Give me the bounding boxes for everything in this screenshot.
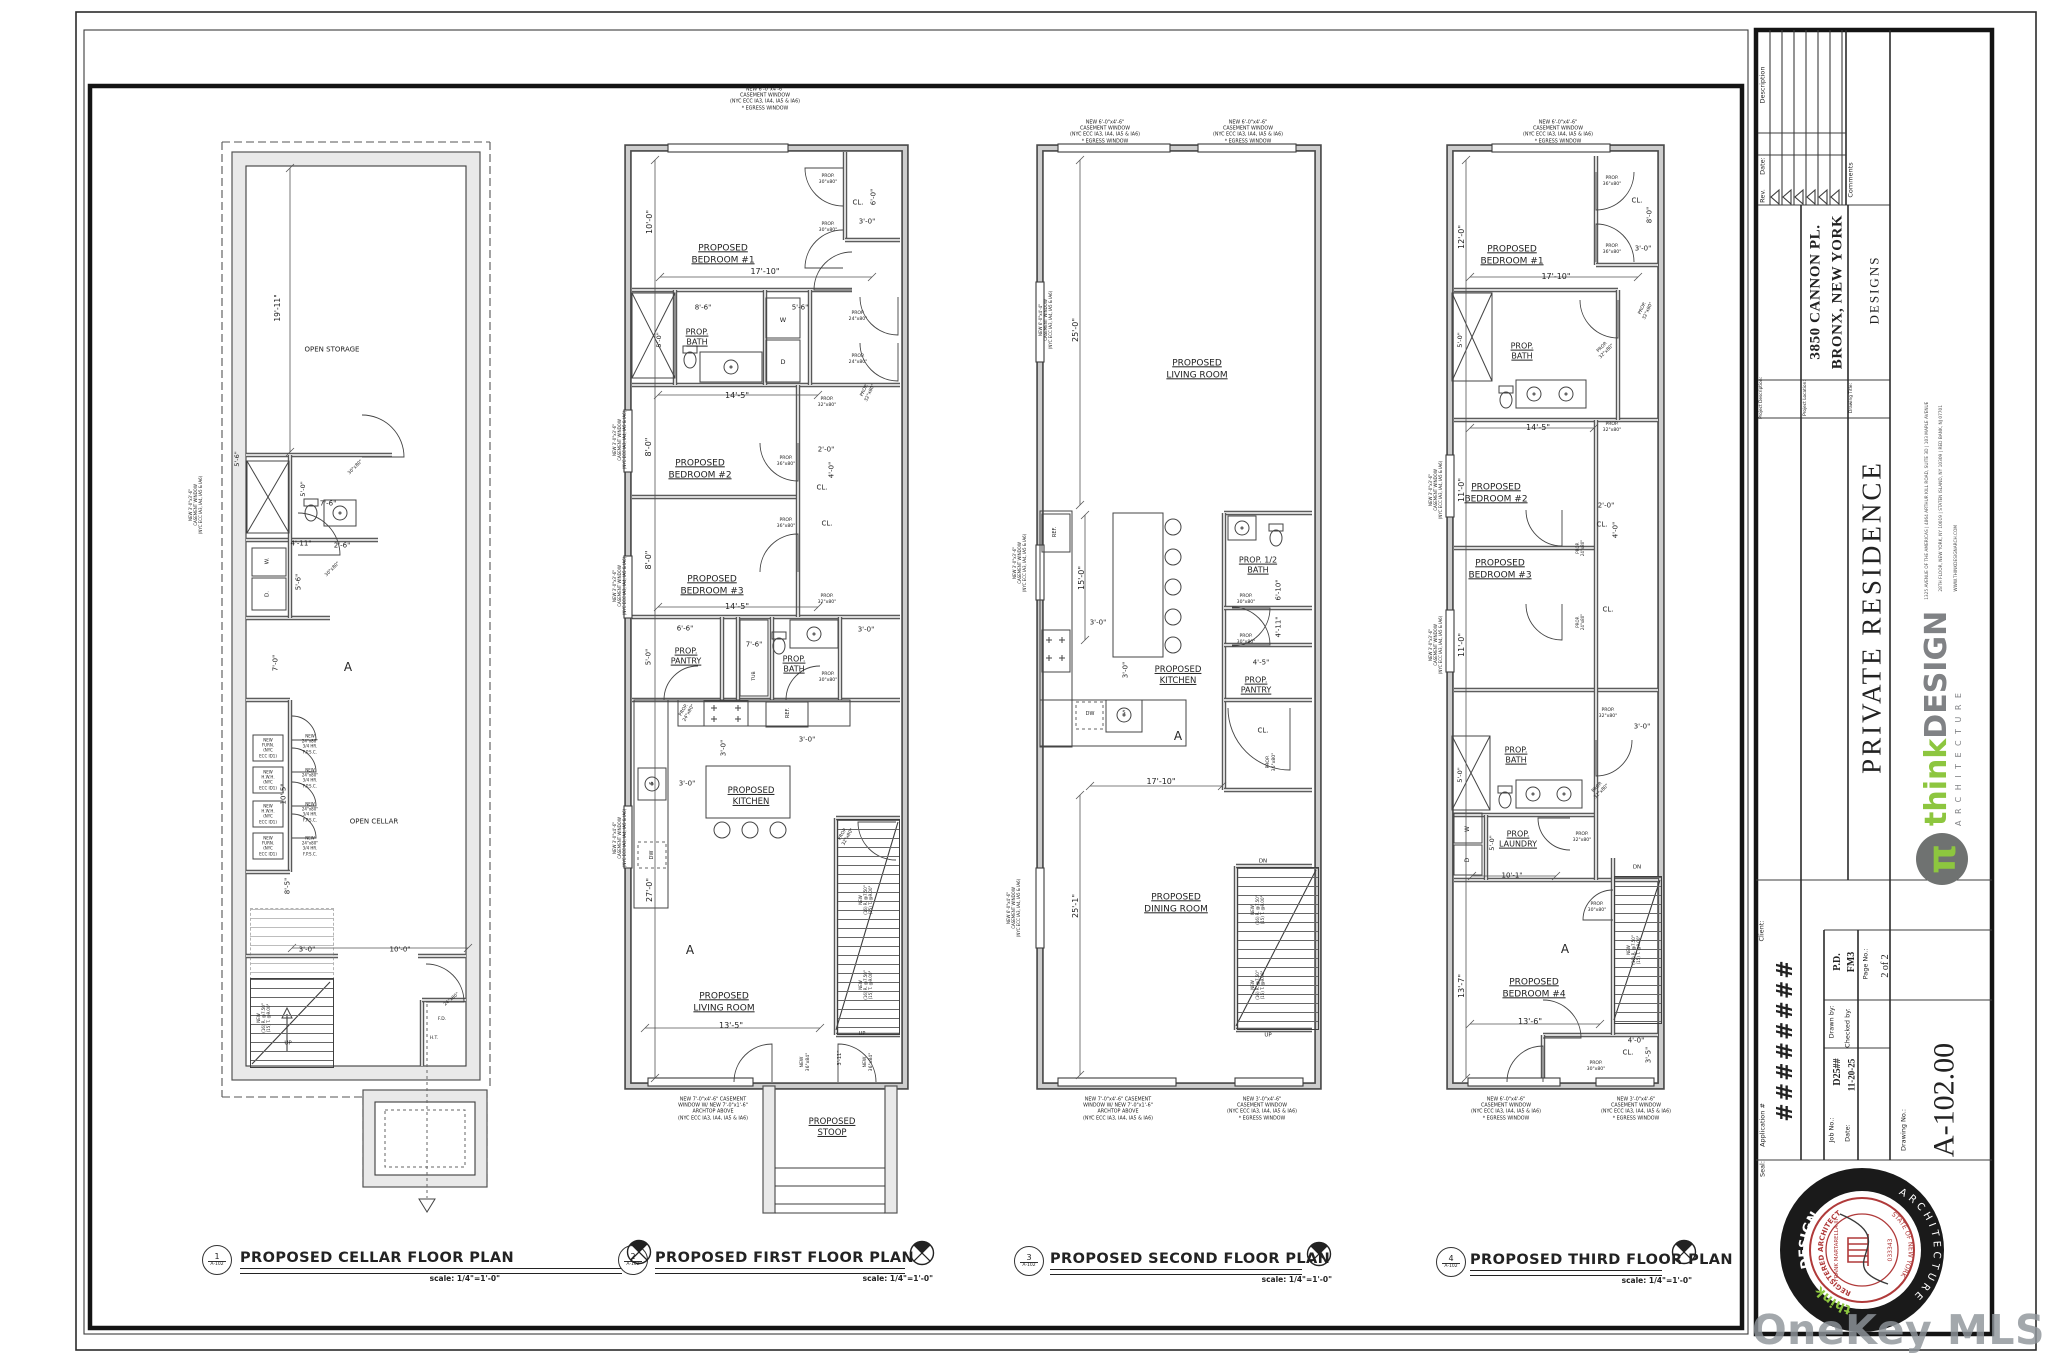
annotation-label: NEW 7'-0"x4'-6" CASEMENT WINDOW W/ NEW 7… [1083,1098,1153,1123]
annotation-label: 3'-0" [1634,722,1651,731]
annotation-label: 3'-0" [1635,244,1652,253]
annotation-label: REF. [785,708,792,718]
annotation-label: S [649,781,656,784]
annotation-label: 5'-0" [644,649,653,666]
onekey-mls-watermark: OneKey MLS [1700,1306,2045,1354]
annotation-label: PROP. LAUNDRY [1499,830,1537,851]
annotation-label: 3'-0" [1090,618,1107,627]
plan-number-bubble: 4 A-102 [1436,1247,1466,1277]
annotation-label: 13'-5" [719,1021,743,1031]
annotation-label: 4'-0" [1611,522,1620,539]
annotation-label: PROPOSED BEDROOM #2 [1464,482,1527,505]
annotation-label: PROP. 36"x80" [1603,244,1622,256]
annotation-label: 2'-0" [1598,501,1615,510]
annotation-label: CL. [1631,196,1642,205]
annotation-label: PROP. 32"x80" [1573,832,1592,844]
annotation-label: 11'-0" [1457,633,1467,657]
annotation-label: CL. [816,483,827,492]
annotation-label: A [344,660,352,676]
annotation-label: NEW 6'-0"x4'-6" CASEMENT WINDOW (NYC ECC… [1523,121,1593,146]
annotation-label: W [780,316,786,324]
annotation-label: PROP. 36"x80" [1603,176,1622,188]
rev-date-label: Date: [1758,157,1767,175]
plan-title: PROPOSED CELLAR FLOOR PLAN [240,1250,514,1266]
plan-sheet-ref: A-102 [1444,1264,1457,1270]
annotation-label: 2'-0" [818,445,835,454]
annotation-label: 25'-1" [1071,894,1081,918]
project-location-value: 3850 CANNON PL. BRONX, NEW YORK [1805,215,1849,369]
annotation-label: NEW 6'-0"x4'-6" CASEMENT WINDOW (NYC ECC… [1070,121,1140,146]
annotation-label: 2'-6" [334,541,351,550]
svg-text:033343: 033343 [1887,1238,1894,1261]
annotation-label: D. [264,591,271,597]
logo-address-1: 1325 AVENUE OF THE AMERICAS | 4864 ARTHU… [1925,402,1930,600]
checked-by-value: FM3 [1845,952,1860,973]
annotation-label: NEW 6'-0"x4'-4" CASEMENT WINDOW (NYC ECC… [1038,291,1054,349]
plan-number: 4 [1442,1254,1459,1265]
drawing-sheet: 19'-11"OPEN STORAGE5'-6"5'-0"7'-6"30"x80… [0,0,2048,1365]
plan-sheet-ref: A-102 [210,1262,223,1268]
page-no-value: 2 of 2 [1879,954,1894,977]
annotation-label: 3'-0" [1121,662,1130,679]
annotation-label: 7'-6" [746,640,763,649]
annotation-label: CL. [1602,605,1613,614]
annotation-label: 27'-0" [645,878,655,902]
annotation-label: NEW 3'-0"x3'-6" CASEMENT WINDOW (NYC ECC… [612,557,628,615]
annotation-label: 3'-0" [679,779,696,788]
annotation-label: NEW (16) R. @7.50" (15) T. @9.00" [1250,970,1266,999]
annotation-label: NEW 3'-0"x3'-6" CASEMENT WINDOW (NYC ECC… [1428,616,1444,674]
annotation-label: NEW 36"x84" [863,1053,875,1072]
annotation-label: OPEN CELLAR [350,817,399,826]
annotation-label: NEW (16) R. @7.50" (15) T. @9.00" [858,970,874,999]
annotation-label: PROP. 24"x80" [1575,614,1585,630]
annotation-label: NEW (16) R. @7.50" (15) T. @9.00" [1626,935,1642,964]
plan-scale: scale: 1/4"=1'-0" [833,1274,933,1283]
annotation-label: 5'-6" [792,303,809,312]
stairs-second-floor [1237,867,1319,1030]
page-no-label: Page No.: [1861,949,1870,980]
annotation-label: 8'-0" [644,438,654,457]
thinkdesign-logo: π thinkDESIGN ARCHITECTURE 1325 AVENUE O… [1892,545,1992,885]
annotation-label: UP [859,1031,866,1038]
application-value: ######## [1770,958,1802,1121]
floorplan-linework [0,0,2048,1365]
annotation-label: PROPOSED LIVING ROOM [693,991,754,1014]
north-arrow-icon [1670,1238,1698,1266]
annotation-label: 12'-0" [1457,225,1467,249]
annotation-label: PROP. 36"x80" [777,518,796,530]
annotation-label: PROP. 32"x80" [1603,422,1622,434]
annotation-label: 25'-0" [1071,318,1081,342]
annotation-label: NEW 6'-0"x4'-6" CASEMENT WINDOW (NYC ECC… [1471,1098,1541,1123]
annotation-label: DN [1259,858,1267,865]
annotation-label: 14'-5" [725,602,749,612]
annotation-label: NEW 24"x80" 3/4 HR. F.P.S.C. [302,768,318,789]
annotation-label: S [1122,710,1125,717]
annotation-label: NEW 24"x80" 3/4 HR. F.P.S.C. [302,734,318,755]
annotation-label: 15'-0" [1077,566,1087,590]
annotation-label: NEW (16) R. @7.50" (15) T. @9.00" [858,885,874,914]
annotation-label: PROPOSED DINING ROOM [1144,892,1208,915]
annotation-label: 17'-10" [1541,272,1570,282]
annotation-label: NEW 6'-0"x4'-6" CASEMENT WINDOW (NYC ECC… [1006,879,1022,937]
annotation-label: F.D. [438,1017,446,1023]
annotation-label: PROP. BATH [686,328,709,349]
annotation-label: NEW 7'-0"x4'-6" CASEMENT WINDOW W/ NEW 7… [678,1098,748,1123]
annotation-label: NEW 3'-0"x4'-6" CASEMENT WINDOW (NYC ECC… [1227,1098,1297,1123]
annotation-label: CL. [821,519,832,528]
logo-address-2: 28TH FLOOR, NEW YORK, NY 10019 | STATEN … [1939,405,1944,592]
date-field-label: Date: [1843,1124,1852,1142]
annotation-label: PROP. 30"x80" [1587,1061,1606,1073]
annotation-label: PROPOSED BEDROOM #4 [1502,977,1565,1000]
annotation-label: 10'-0" [389,945,410,954]
annotation-label: PROPOSED BEDROOM #1 [1480,244,1543,267]
annotation-label: UP [284,1040,291,1047]
logo-architecture: ARCHITECTURE [1954,611,1963,826]
plan-scale: scale: 1/4"=1'-0" [400,1274,500,1283]
job-no-value: D25## [1831,1058,1846,1085]
annotation-label: NEW (16) R. @7.50" (15) T. @9.00" [1250,895,1266,924]
annotation-label: NEW FURN. (NYC ECC ID1) [259,836,277,857]
annotation-label: 5'-6" [233,451,241,466]
annotation-label: 3'-11" [837,1050,844,1065]
logo-design: DESIGN [1919,611,1954,739]
north-arrow-icon [908,1239,936,1267]
north-arrow-icon [1305,1240,1333,1268]
annotation-label: PROP. 30"x80" [1237,594,1256,606]
annotation-label: PROP. PANTRY [1241,676,1272,697]
annotation-label: PROP. 30"x80" [819,222,838,234]
annotation-label: PROPOSED LIVING ROOM [1166,358,1227,381]
annotation-label: PROP. 24"x80" [849,311,868,323]
annotation-label: 3'-0" [719,740,728,757]
annotation-label: DN [1633,864,1641,871]
annotation-label: PROPOSED KITCHEN [1155,665,1202,687]
annotation-label: 4'-0" [1628,1036,1645,1045]
annotation-label: 5'-0" [655,332,663,347]
annotation-label: 8'-0" [644,551,654,570]
annotation-label: NEW H.W.H. (NYC ECC ID1) [259,770,277,791]
annotation-label: PROPOSED BEDROOM #3 [1468,558,1531,581]
annotation-label: PROPOSED KITCHEN [728,786,775,808]
annotation-label: 7'-6" [320,499,337,508]
annotation-label: D [1464,858,1472,863]
annotation-label: 5'-6" [294,574,303,591]
annotation-label: A [686,943,694,959]
plan-title: PROPOSED FIRST FLOOR PLAN [655,1250,914,1266]
project-description-value: PRIVATE RESIDENCE [1852,460,1891,774]
annotation-label: PROP. 1/2 BATH [1239,556,1277,577]
annotation-label: NEW 3'-0"x4'-6" CASEMENT WINDOW (NYC ECC… [1601,1098,1671,1123]
north-arrow-icon [625,1238,653,1266]
annotation-label: H.T. [430,1036,438,1042]
plan-number-bubble: 1 A-102 [202,1245,232,1275]
annotation-label: PROP. 30"x80" [1237,634,1256,646]
rev-comments-label: Comments [1846,162,1855,197]
annotation-label: OPEN STORAGE [305,345,360,354]
annotation-label: 6'-6" [677,624,694,633]
logo-website: WWW.THINKDESIGNARCH.COM [1954,525,1959,592]
client-label: Client: [1757,920,1766,941]
annotation-label: CL. [1622,1048,1633,1057]
date-value: 11-20-25 [1845,1059,1858,1092]
annotation-label: NEW 3'-0"x3'-6" CASEMENT WINDOW (NYC ECC… [1428,461,1444,519]
annotation-label: 4'-5" [1253,658,1270,667]
annotation-label: NEW 3'-0"x3'-6" CASEMENT WINDOW (NYC ECC… [188,476,204,534]
annotation-label: CL. [1596,520,1607,529]
annotation-label: NEW 24"x80" 3/4 HR. F.P.S.C. [302,836,318,857]
annotation-label: 8'-5" [283,878,292,895]
annotation-label: NEW 3'-0"x4'-6" CASEMENT WINDOW (NYC ECC… [612,809,628,867]
annotation-label: 8'-0" [1645,207,1654,224]
annotation-label: PROP. 36"x80" [1266,753,1278,772]
annotation-label: 4'-0" [827,462,836,479]
annotation-label: NEW 24"x80" 3/4 HR. F.P.S.C. [302,802,318,823]
application-label: Application # [1758,1103,1767,1147]
annotation-label: NEW 3'-0"x3'-6" CASEMENT WINDOW (NYC ECC… [612,411,628,469]
annotation-label: 3'-0" [859,217,876,226]
annotation-label: PROPOSED BEDROOM #3 [680,574,743,597]
job-no-label: Job No.: [1827,1117,1836,1142]
drawing-title-label: Drawing Title: [1849,383,1855,413]
annotation-label: 17'-10" [750,267,779,277]
plan-number: 3 [1020,1253,1037,1264]
annotation-label: PROP. 30"x80" [819,174,838,186]
annotation-label: 5'-0" [1456,767,1464,782]
annotation-label: 10'-1" [1501,871,1522,880]
plan-number-bubble: 3 A-102 [1014,1246,1044,1276]
project-location-label: Project Location: [1803,380,1809,416]
stairs-first-floor [837,819,900,1035]
annotation-label: PROPOSED BEDROOM #1 [691,243,754,266]
annotation-label: 3'-0" [799,735,816,744]
annotation-label: 3'-5" [1644,1047,1653,1064]
rev-label: Rev. [1758,189,1767,203]
annotation-label: 14'-5" [725,391,749,401]
annotation-label: A [1561,942,1569,958]
project-description-label: Project Description: [1759,377,1765,419]
annotation-label: PROP. 36"x80" [777,456,796,468]
annotation-label: NEW 6'-0"x4'-6" CASEMENT WINDOW (NYC ECC… [1213,121,1283,146]
annotation-label: 7'-0" [271,655,280,672]
annotation-label: 3'-0" [299,945,316,954]
annotation-label: 5'-0" [299,481,307,496]
annotation-label: 6'-10" [1274,579,1283,600]
annotation-label: NEW 3'-0"x3'-6" CASEMENT WINDOW (NYC ECC… [1012,534,1028,592]
annotation-label: 13'-7" [1457,974,1467,998]
annotation-label: NEW (16) R. @7.50" (15) T. @9.00" [256,1003,272,1032]
annotation-label: 14'-5" [1526,423,1550,433]
annotation-label: REF. [1052,527,1059,537]
drawing-no-label: Drawing No.: [1899,1109,1908,1151]
annotation-label: 4'-11" [290,539,311,548]
annotation-label: NEW 36"x84" [800,1053,812,1072]
svg-text:FRANK MARTARELLA III: FRANK MARTARELLA III [1834,1218,1840,1281]
annotation-label: 5'-0" [1488,835,1496,850]
annotation-label: PROP. PANTRY [671,647,702,668]
annotation-label: 19'-11" [273,294,283,321]
checked-by-label: Checked by: [1843,1008,1852,1048]
drawing-no-value: A-102.00 [1922,1043,1966,1157]
annotation-label: W [1464,826,1472,832]
annotation-label: PROP. 32"x80" [1599,708,1618,720]
annotation-label: W. [264,558,271,565]
annotation-label: NEW FURN. (NYC ECC ID1) [259,738,277,759]
annotation-label: TUB [752,671,758,680]
annotation-label: UP [1264,1032,1271,1039]
annotation-label: PROPOSED BEDROOM #2 [668,458,731,481]
annotation-label: PROP. 30"x80" [1588,902,1607,914]
seal-label: Seal: [1758,1161,1767,1177]
annotation-label: 6'-0" [869,189,878,206]
plan-title: PROPOSED SECOND FLOOR PLAN [1050,1251,1330,1267]
plan-scale: scale: 1/4"=1'-0" [1232,1275,1332,1284]
annotation-label: PROP. 24"x80" [849,354,868,366]
annotation-label: PROP. 32"x80" [818,594,837,606]
plan-sheet-ref: A-102 [1022,1263,1035,1269]
annotation-label: D [780,358,785,366]
annotation-label: PROP. BATH [783,655,806,676]
logo-think: think [1919,739,1954,826]
annotation-label: PROPOSED STOOP [809,1117,856,1139]
annotation-label: 17'-10" [1146,777,1175,787]
annotation-label: CL. [852,198,863,207]
annotation-label: 4'-11" [1274,616,1283,637]
annotation-label: 10'-0" [645,210,655,234]
annotation-label: PROP. 24"x80" [1575,540,1585,556]
logo-mark-icon: π [1916,833,1968,885]
annotation-label: NEW 6'-0"x4'-6" CASEMENT WINDOW (NYC ECC… [730,88,800,113]
annotation-label: 10'-5" [279,783,288,804]
annotation-label: 13'-6" [1518,1017,1542,1027]
annotation-label: PROP. 32"x80" [818,397,837,409]
drawing-title-value: DESIGNS [1866,256,1885,325]
plan-scale: scale: 1/4"=1'-0" [1592,1276,1692,1285]
plan-number: 1 [208,1252,225,1263]
rev-description-label: Description [1758,66,1767,103]
annotation-label: DW [1086,711,1095,718]
annotation-label: DW [649,851,656,860]
annotation-label: PROP. BATH [1505,746,1528,767]
annotation-label: 3'-0" [858,625,875,634]
annotation-label: A [1174,729,1182,745]
annotation-label: PROP. BATH [1511,342,1534,363]
stairs-cellar-dashed [250,908,334,980]
annotation-label: PROP. 30"x80" [819,672,838,684]
drawn-by-value: P.D. [1831,953,1846,970]
annotation-label: NEW H.W.H. (NYC ECC ID1) [259,804,277,825]
annotation-label: CL. [1257,726,1268,735]
annotation-label: 5'-0" [1456,332,1464,347]
drawn-by-label: Drawn by: [1827,1006,1836,1039]
annotation-label: 8'-6" [695,303,712,312]
